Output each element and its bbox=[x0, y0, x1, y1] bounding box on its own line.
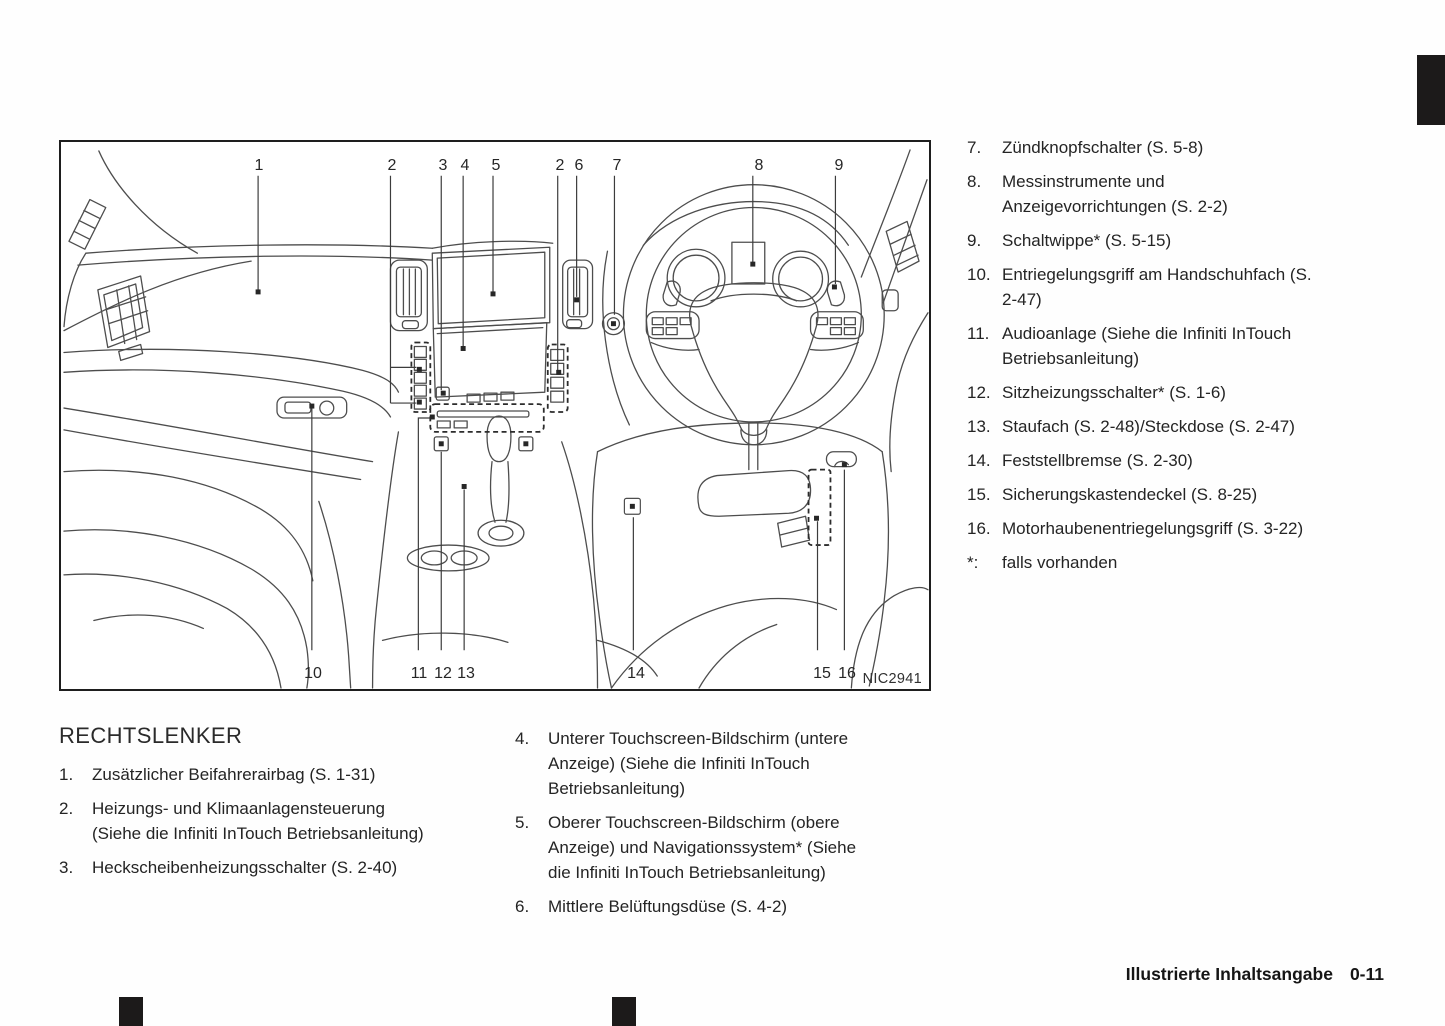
item-text: Sicherungskastendeckel (S. 8-25) bbox=[1002, 482, 1317, 507]
footnote-marker: *: bbox=[967, 550, 1002, 575]
list-item: 2. Heizungs- und Klimaanlagensteuerung (… bbox=[59, 796, 432, 846]
list-item: 15. Sicherungskastendeckel (S. 8-25) bbox=[967, 482, 1317, 507]
callout-3: 3 bbox=[439, 158, 448, 174]
item-number: 10. bbox=[967, 262, 1002, 312]
callout-6: 6 bbox=[575, 158, 584, 174]
section-heading: RECHTSLENKER bbox=[59, 722, 432, 750]
dashboard-line-art bbox=[61, 142, 929, 689]
item-text: Entriegelungsgriff am Handschuhfach (S. … bbox=[1002, 262, 1317, 312]
item-text: Audioanlage (Siehe die Infiniti InTouch … bbox=[1002, 321, 1317, 371]
footer-page-number: 0-11 bbox=[1350, 964, 1384, 985]
item-text: Staufach (S. 2-48)/Steckdose (S. 2-47) bbox=[1002, 414, 1317, 439]
item-number: 7. bbox=[967, 135, 1002, 160]
figure-code: NIC2941 bbox=[863, 671, 922, 687]
page-footer: Illustrierte Inhaltsangabe 0-11 bbox=[1126, 964, 1384, 985]
callout-4: 4 bbox=[461, 158, 470, 174]
steering-wheel-art bbox=[603, 185, 885, 445]
item-number: 5. bbox=[515, 810, 548, 885]
callout-16: 16 bbox=[838, 666, 856, 682]
list-item: 5. Oberer Touchscreen-Bildschirm (obere … bbox=[515, 810, 878, 885]
item-number: 11. bbox=[967, 321, 1002, 371]
list-column-right: 7. Zündknopfschalter (S. 5-8) 8. Messins… bbox=[967, 135, 1317, 584]
list-item: 3. Heckscheibenheizungsschalter (S. 2-40… bbox=[59, 855, 432, 880]
item-text: Oberer Touchscreen-Bildschirm (obere Anz… bbox=[548, 810, 878, 885]
footnote-text: falls vorhanden bbox=[1002, 550, 1317, 575]
item-text: Heizungs- und Klimaanlagensteuerung (Sie… bbox=[92, 796, 432, 846]
item-number: 3. bbox=[59, 855, 92, 880]
item-number: 14. bbox=[967, 448, 1002, 473]
list-item: 16. Motorhaubenentriegelungsgriff (S. 3-… bbox=[967, 516, 1317, 541]
list-column-middle: 4. Unterer Touchscreen-Bildschirm (unter… bbox=[515, 726, 878, 928]
callout-12: 12 bbox=[434, 666, 452, 682]
item-number: 8. bbox=[967, 169, 1002, 219]
print-registration-mark bbox=[612, 997, 636, 1026]
item-text: Schaltwippe* (S. 5-15) bbox=[1002, 228, 1317, 253]
item-number: 13. bbox=[967, 414, 1002, 439]
list-item: 14. Feststellbremse (S. 2-30) bbox=[967, 448, 1317, 473]
callout-8: 8 bbox=[755, 158, 764, 174]
item-number: 16. bbox=[967, 516, 1002, 541]
list-column-left: RECHTSLENKER 1. Zusätzlicher Beifahrerai… bbox=[59, 722, 432, 889]
callout-15: 15 bbox=[813, 666, 831, 682]
callout-7: 7 bbox=[613, 158, 622, 174]
item-number: 12. bbox=[967, 380, 1002, 405]
item-text: Unterer Touchscreen-Bildschirm (untere A… bbox=[548, 726, 878, 801]
item-text: Messinstrumente und Anzeigevorrichtungen… bbox=[1002, 169, 1317, 219]
callout-2: 2 bbox=[388, 158, 397, 174]
callout-13: 13 bbox=[457, 666, 475, 682]
print-registration-mark bbox=[119, 997, 143, 1026]
list-item: 1. Zusätzlicher Beifahrerairbag (S. 1-31… bbox=[59, 762, 432, 787]
list-item: 8. Messinstrumente und Anzeigevorrichtun… bbox=[967, 169, 1317, 219]
callout-10: 10 bbox=[304, 666, 322, 682]
item-text: Motorhaubenentriegelungsgriff (S. 3-22) bbox=[1002, 516, 1317, 541]
item-text: Mittlere Belüftungsdüse (S. 4-2) bbox=[548, 894, 878, 919]
manual-page: 1 2 3 4 5 2 6 7 8 9 10 11 12 13 14 15 16… bbox=[0, 0, 1445, 1026]
list-item: 9. Schaltwippe* (S. 5-15) bbox=[967, 228, 1317, 253]
list-item: 10. Entriegelungsgriff am Handschuhfach … bbox=[967, 262, 1317, 312]
callout-14: 14 bbox=[627, 666, 645, 682]
list-item: 6. Mittlere Belüftungsdüse (S. 4-2) bbox=[515, 894, 878, 919]
footer-section-title: Illustrierte Inhaltsangabe bbox=[1126, 964, 1333, 985]
item-text: Zündknopfschalter (S. 5-8) bbox=[1002, 135, 1317, 160]
item-number: 2. bbox=[59, 796, 92, 846]
item-number: 6. bbox=[515, 894, 548, 919]
callout-2b: 2 bbox=[556, 158, 565, 174]
callout-11: 11 bbox=[411, 666, 428, 682]
chapter-tab-marker bbox=[1417, 55, 1445, 125]
list-item: 12. Sitzheizungsschalter* (S. 1-6) bbox=[967, 380, 1317, 405]
callout-1: 1 bbox=[255, 158, 264, 174]
item-text: Heckscheibenheizungsschalter (S. 2-40) bbox=[92, 855, 432, 880]
item-number: 1. bbox=[59, 762, 92, 787]
item-text: Zusätzlicher Beifahrerairbag (S. 1-31) bbox=[92, 762, 432, 787]
callout-5: 5 bbox=[492, 158, 501, 174]
list-item: 4. Unterer Touchscreen-Bildschirm (unter… bbox=[515, 726, 878, 801]
list-item-footnote: *: falls vorhanden bbox=[967, 550, 1317, 575]
callout-9: 9 bbox=[835, 158, 844, 174]
list-item: 13. Staufach (S. 2-48)/Steckdose (S. 2-4… bbox=[967, 414, 1317, 439]
item-text: Feststellbremse (S. 2-30) bbox=[1002, 448, 1317, 473]
item-number: 15. bbox=[967, 482, 1002, 507]
list-item: 7. Zündknopfschalter (S. 5-8) bbox=[967, 135, 1317, 160]
item-number: 4. bbox=[515, 726, 548, 801]
item-number: 9. bbox=[967, 228, 1002, 253]
list-item: 11. Audioanlage (Siehe die Infiniti InTo… bbox=[967, 321, 1317, 371]
footwell-right-art bbox=[592, 150, 928, 688]
dashboard-figure: 1 2 3 4 5 2 6 7 8 9 10 11 12 13 14 15 16… bbox=[59, 140, 931, 691]
item-text: Sitzheizungsschalter* (S. 1-6) bbox=[1002, 380, 1317, 405]
